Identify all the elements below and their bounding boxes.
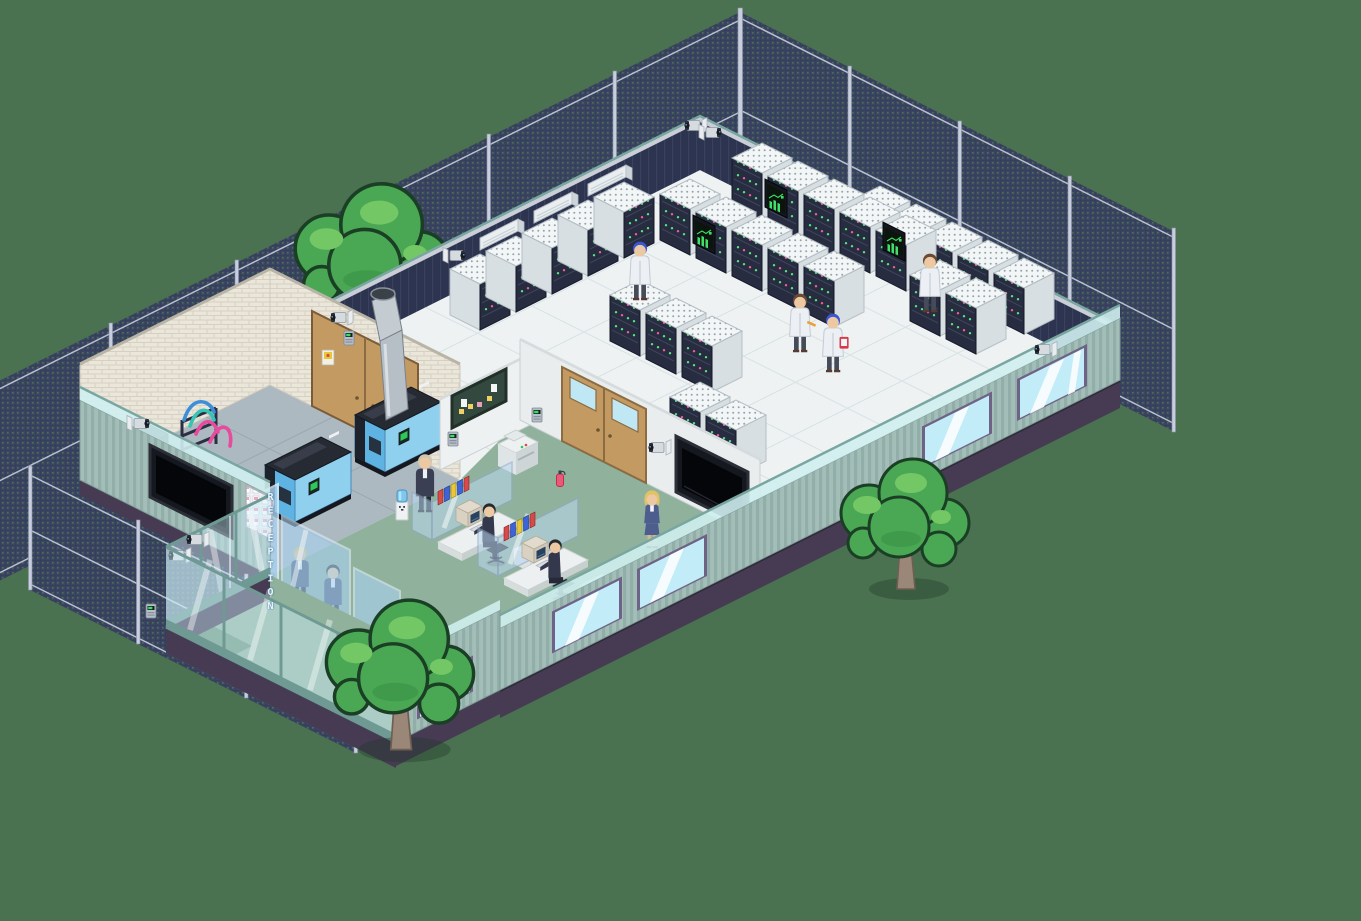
scene-canvas — [0, 0, 1361, 921]
server-rack[interactable] — [682, 316, 742, 392]
keycard-panel[interactable] — [448, 432, 458, 446]
keycard-panel[interactable] — [532, 408, 542, 422]
game-scene: RECEPTION — [0, 0, 1361, 921]
keycard-panel[interactable] — [344, 331, 354, 345]
server-rack[interactable] — [946, 278, 1006, 354]
water-cooler[interactable] — [396, 490, 408, 520]
keycard-panel[interactable] — [146, 604, 156, 618]
reception-sign: RECEPTION — [250, 492, 276, 610]
